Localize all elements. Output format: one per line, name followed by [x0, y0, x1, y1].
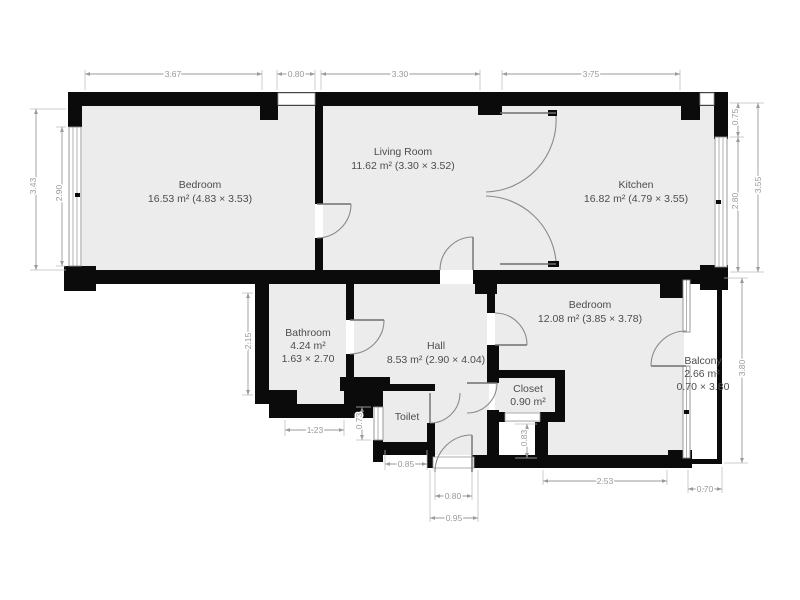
floor-plan: 3.67 0.80 3.30 3.75 3.43 2.90 0.75 2.80 …	[0, 0, 800, 600]
dim-entry-outer: 0.95	[446, 513, 463, 523]
dim-left-window: 2.90	[54, 184, 64, 201]
svg-text:2.66 m²: 2.66 m²	[684, 368, 720, 380]
svg-text:12.08 m² (3.85 × 3.78): 12.08 m² (3.85 × 3.78)	[538, 313, 642, 325]
window-toilet	[374, 407, 383, 440]
dim-top-2: 0.80	[288, 69, 305, 79]
svg-text:16.53 m² (4.83 × 3.53): 16.53 m² (4.83 × 3.53)	[148, 193, 252, 205]
svg-text:16.82 m² (4.79 × 3.55): 16.82 m² (4.79 × 3.55)	[584, 193, 688, 205]
dim-top-3: 3.30	[392, 69, 409, 79]
room-living	[323, 106, 488, 270]
svg-text:Balcony: Balcony	[684, 355, 722, 367]
dim-toilet-window: 0.73	[354, 412, 364, 429]
svg-text:Bedroom: Bedroom	[569, 299, 612, 311]
exterior-pocket	[499, 422, 535, 455]
floor-plan-page: 3.67 0.80 3.30 3.75 3.43 2.90 0.75 2.80 …	[0, 0, 800, 600]
dim-right-top: 0.75	[730, 108, 740, 125]
svg-text:Closet: Closet	[513, 383, 543, 395]
dim-right-balcony: 3.80	[737, 359, 747, 376]
top-wall-niche-right	[700, 93, 714, 105]
svg-text:Toilet: Toilet	[395, 411, 420, 423]
svg-text:Kitchen: Kitchen	[618, 179, 653, 191]
entry-threshold	[433, 457, 474, 468]
room-label-toilet: Toilet	[395, 411, 420, 423]
room-label-closet: Closet 0.90 m²	[510, 383, 546, 408]
dim-top-1: 3.67	[165, 69, 182, 79]
dim-balcony-bottom: 0.70	[697, 484, 714, 494]
dim-right-window: 2.80	[730, 192, 740, 209]
dim-bath-bottom: 1.23	[307, 425, 324, 435]
svg-text:Hall: Hall	[427, 340, 445, 352]
svg-text:0.90 m²: 0.90 m²	[510, 396, 546, 408]
room-hall-lower	[390, 284, 487, 384]
svg-text:4.24 m²: 4.24 m²	[290, 340, 326, 352]
svg-text:8.53 m² (2.90 × 4.04): 8.53 m² (2.90 × 4.04)	[387, 354, 485, 366]
room-kitchen	[488, 106, 714, 270]
dim-toilet-bottom: 0.85	[398, 459, 415, 469]
svg-text:Living Room: Living Room	[374, 146, 433, 158]
room-vestibule	[427, 384, 489, 455]
dim-right-outer: 3.55	[753, 176, 763, 193]
dim-entry-inner: 0.80	[445, 491, 462, 501]
svg-text:0.70 × 3.80: 0.70 × 3.80	[677, 381, 730, 393]
dim-left-outer: 3.43	[28, 177, 38, 194]
top-wall-niche-left	[278, 93, 315, 105]
closet-hatch	[505, 413, 540, 421]
svg-text:11.62 m² (3.30 × 3.52): 11.62 m² (3.30 × 3.52)	[351, 160, 454, 172]
svg-text:Bathroom: Bathroom	[285, 327, 331, 339]
dim-bath-left: 2.15	[243, 332, 253, 349]
svg-text:Bedroom: Bedroom	[179, 179, 222, 191]
dim-closet-passage: 0.83	[519, 429, 529, 446]
dim-bed2-bottom: 2.53	[597, 476, 614, 486]
dim-top-4: 3.75	[583, 69, 600, 79]
svg-text:1.63 × 2.70: 1.63 × 2.70	[282, 353, 335, 365]
